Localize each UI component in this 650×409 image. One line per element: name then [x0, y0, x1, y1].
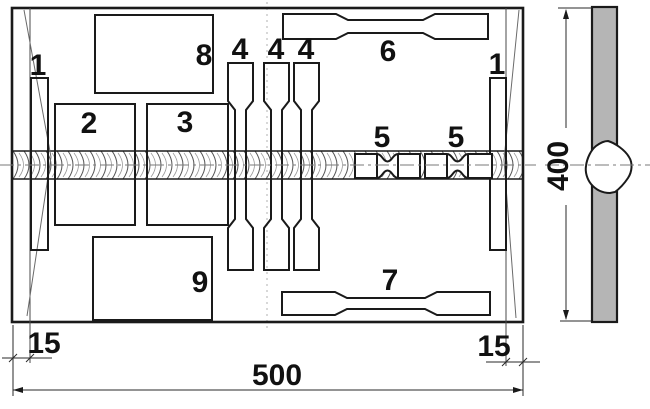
dim-15-right: 15: [477, 330, 540, 366]
specimen-4-c-label: 4: [298, 33, 315, 66]
specimen-1-left-label: 1: [30, 49, 47, 82]
dim-500-label: 500: [252, 359, 302, 392]
specimen-7-label: 7: [382, 264, 399, 297]
diagram-canvas: 1 1 2 3 4 4 4 5 5 6 7 8 9 15 15: [0, 0, 650, 409]
specimen-4-b-label: 4: [268, 33, 285, 66]
dim-400: 400: [542, 8, 592, 321]
dim-400-arrow-top: [563, 9, 569, 19]
specimen-3-label: 3: [177, 106, 194, 139]
specimen-8-label: 8: [196, 39, 213, 72]
specimen-1-right-label: 1: [489, 48, 506, 81]
specimen-5-b-label: 5: [448, 121, 465, 154]
dim-500: 500: [13, 359, 523, 393]
dim-400-arrow-bottom: [563, 310, 569, 320]
specimen-6-label: 6: [380, 35, 397, 68]
dim-500-arrow-right: [513, 387, 523, 393]
side-view: 400: [542, 7, 650, 322]
dim-400-label: 400: [542, 141, 575, 191]
side-view-weld-bead: [586, 141, 632, 193]
specimen-4-a-label: 4: [232, 33, 249, 66]
specimen-2-label: 2: [81, 107, 98, 140]
main-plate-view: 1 1 2 3 4 4 4 5 5 6 7 8 9 15 15: [0, 2, 540, 396]
specimen-5-a-label: 5: [374, 121, 391, 154]
dim-15-left-label: 15: [27, 327, 60, 360]
weld-plate-diagram: 1 1 2 3 4 4 4 5 5 6 7 8 9 15 15: [0, 0, 650, 409]
specimen-9-label: 9: [192, 266, 209, 299]
dim-500-arrow-left: [13, 387, 23, 393]
dim-15-left: 15: [2, 327, 61, 362]
dim-15-right-label: 15: [477, 330, 510, 363]
